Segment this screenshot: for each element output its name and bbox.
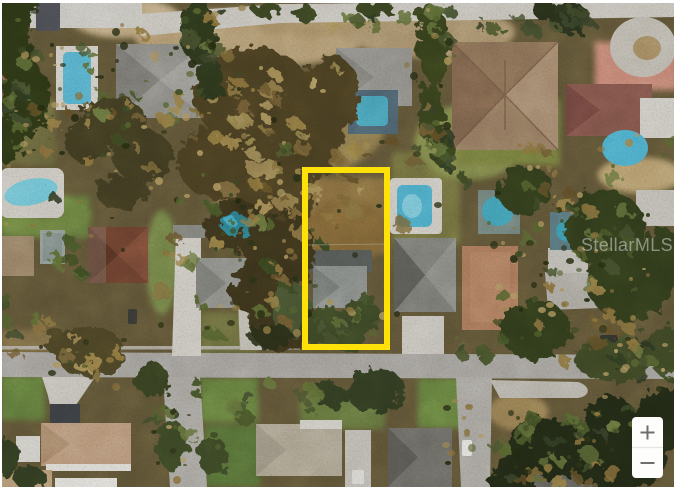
svg-text:StellarMLS: StellarMLS bbox=[581, 235, 673, 255]
